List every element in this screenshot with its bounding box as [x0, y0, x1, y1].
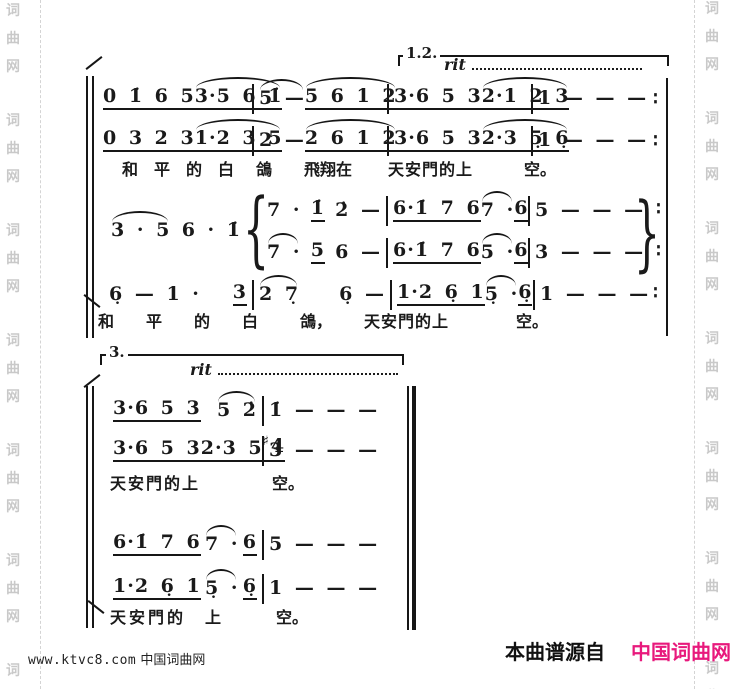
note-group: 6·1̇ 7 6 — [113, 531, 201, 556]
note-group: 5 — — [259, 87, 305, 110]
measure: 2 —2 6 1 2 — [254, 127, 387, 152]
volta-label: 3. — [106, 345, 128, 360]
watermark-char: 曲 — [6, 252, 20, 266]
measure: 0 3 2 31·2 3 5 — [98, 127, 252, 152]
watermark-char: 网 — [6, 170, 20, 184]
lyric-cell: 空。 — [272, 474, 304, 494]
note-group: 3 — — — — [269, 439, 378, 462]
note-group: 6̣ — — [339, 283, 385, 306]
music-line-voice2: 0 3 2 31·2 3 52 —2 6 1 23·6 5 32·3 5̣ 6̣… — [98, 126, 654, 152]
measure: 5 — — — — [530, 199, 644, 222]
lyric-cell: 天安門的上 — [364, 312, 449, 332]
note-group: 5 — — — — [269, 533, 378, 556]
watermark-char: 曲 — [6, 472, 20, 486]
measure: 1 — — — — [264, 577, 392, 600]
watermark-char: 网 — [6, 280, 20, 294]
note-group: 6 — [243, 531, 257, 556]
lyric-cell: 天安門的上 — [388, 160, 473, 180]
footer-url: www.ktvc8.com — [28, 653, 136, 668]
note-group: 5̣ · — [205, 577, 238, 600]
note-group: 3 — — — — [535, 241, 644, 264]
watermark-char: 词 — [705, 332, 719, 346]
watermark-char: 曲 — [705, 140, 719, 154]
watermark-char: 词 — [6, 334, 20, 348]
rit-marking: rit — [444, 57, 466, 73]
watermark-char: 词 — [6, 224, 20, 238]
note-group: 6 · 1̇ — [182, 219, 241, 242]
repeat-dots: ∶ — [653, 284, 658, 303]
music-line-tenor-lead: 3 · 56 · 1̇ — [106, 216, 246, 242]
watermark-char: 网 — [6, 60, 20, 74]
note-group: 2̇ — — [335, 199, 381, 222]
note-group: 5 — — — — [535, 199, 644, 222]
measure: 3·6 5 35 2̇ — [108, 397, 262, 422]
watermark-char: 词 — [6, 444, 20, 458]
repeat-dots: ∶ — [653, 132, 658, 151]
note-group: 6̣ — [243, 575, 257, 600]
note-group: 1·2 6̣ 1 — [397, 281, 485, 306]
footer-sitename-right: 中国词曲网 — [631, 636, 731, 665]
note-group: 1̇ — [311, 197, 325, 222]
note-group: 5 2̇ — [217, 399, 257, 422]
measure: 3·6 5 32·3 5♯4 — [108, 435, 262, 462]
music-line-voice1: 3·6 5 35 2̇1̇ — — — — [108, 396, 392, 422]
repeat-dots: ∶ — [656, 242, 661, 261]
watermark-char: 网 — [705, 608, 719, 622]
watermark-char: 曲 — [705, 250, 719, 264]
footer-source-left: www.ktvc8.com 中国词曲网 — [28, 649, 205, 668]
note-group: 3 — [233, 281, 247, 306]
measure: 1 — — — — [535, 283, 647, 306]
watermark-divider-left — [40, 0, 41, 689]
note-group: 3 · 5 — [111, 219, 170, 242]
watermark-char: 词 — [705, 112, 719, 126]
watermark-char: 词 — [6, 664, 20, 678]
measure: 1·2 6̣ 15̣ ·6̣ — [392, 281, 533, 306]
watermark-char: 网 — [6, 610, 20, 624]
repeat-dots: ∶ — [656, 200, 661, 219]
note-group: 3·6 5 3 — [113, 397, 201, 422]
measure: 6̣ — 1 ·3 — [104, 281, 252, 306]
watermark-char: 词 — [705, 552, 719, 566]
watermark-char: 曲 — [705, 360, 719, 374]
system-diagonal-stroke — [88, 600, 105, 614]
measure: 5 — — — — [264, 533, 392, 556]
watermark-char: 词 — [6, 114, 20, 128]
watermark-char: 网 — [6, 390, 20, 404]
system-brace-open: { — [243, 190, 269, 270]
music-line-tenor-lower: 7 ·56 —6·1̇ 7 65 ·63 — — — — [262, 238, 644, 264]
note-group: 6 — [514, 197, 528, 222]
music-line-voice4: 1·2 6̣ 15̣ ·6̣1 — — — — [108, 574, 392, 600]
measure: 3·6 5 32·3 5̣ 6̣ — [389, 127, 531, 152]
note-group: 1 — — — — [540, 283, 649, 306]
lyric-cell: 天安門的上 — [110, 474, 200, 494]
rit-dotted-line — [472, 68, 642, 70]
watermark-char: 网 — [705, 498, 719, 512]
note-group: 7 · — [267, 199, 300, 222]
sheet-music-page: 词曲网词曲网词曲网词曲网词曲网词曲网词曲网 词曲网词曲网词曲网词曲网词曲网词曲网… — [0, 0, 737, 689]
watermark-char: 曲 — [6, 582, 20, 596]
system-barline — [666, 78, 668, 336]
note-group: 2·3 5 — [201, 437, 263, 462]
system-barline — [92, 386, 94, 628]
measure: 1 — — — — [533, 129, 654, 152]
note-group: 5̣ · — [485, 283, 518, 306]
footer-sitename-left: 中国词曲网 — [140, 653, 205, 668]
rit-marking: rit — [190, 362, 212, 378]
note-group: 1 — — — — [538, 87, 647, 110]
measure: 6·1̇ 7 67 ·6 — [108, 531, 262, 556]
measure: 1̇ — — — — [264, 399, 392, 422]
note-group: 3·6 5 3 — [113, 437, 201, 462]
watermark-char: 网 — [705, 168, 719, 182]
note-group: 3·6 5 3 — [394, 127, 482, 152]
watermark-char: 曲 — [6, 362, 20, 376]
note-group: 1 — — — — [269, 577, 378, 600]
repeat-dots: ∶ — [653, 90, 658, 109]
lyric-cell: 鴿， — [300, 312, 332, 332]
volta-label: 1.2. — [403, 46, 440, 61]
watermark-char: 词 — [6, 554, 20, 568]
measure: 1·2 6̣ 15̣ ·6̣ — [108, 575, 262, 600]
system-barline — [407, 386, 409, 630]
note-group: 2 6 1 2 — [305, 127, 397, 152]
measure: 3 · 56 · 1̇ — [106, 219, 246, 242]
watermark-char: 词 — [705, 2, 719, 16]
lyric-cell: 天安門的 上 — [110, 608, 224, 628]
watermark-char: 曲 — [705, 580, 719, 594]
measure: 3·6 5 32·1 2 3 — [389, 85, 531, 110]
lyric-cell: 空。 — [516, 312, 548, 332]
note-group: 2 — — [259, 129, 305, 152]
music-line-voice2: 3·6 5 32·3 5♯43 — — — — [108, 436, 392, 462]
watermark-char: 词 — [6, 4, 20, 18]
lyric-cell: 空。 — [276, 608, 308, 628]
measure: 2 7̣6̣ — — [254, 283, 390, 306]
music-line-voice3: 6·1̇ 7 67 ·65 — — — — [108, 530, 392, 556]
measure: 3 — — — — [530, 241, 644, 264]
note-group: 6 — — [335, 241, 381, 264]
music-line-tenor-upper: 7 ·1̇2̇ —6·1̇ 7 67 ·65 — — — — [262, 196, 644, 222]
note-group: 1 — — — — [538, 129, 647, 152]
note-group: 6·1̇ 7 6 — [393, 239, 481, 264]
watermark-char: 曲 — [705, 470, 719, 484]
note-group: 7 · — [481, 199, 514, 222]
system-diagonal-stroke — [86, 56, 103, 70]
music-line-bass: 6̣ — 1 ·32 7̣6̣ —1·2 6̣ 15̣ ·6̣1 — — — — [104, 280, 647, 306]
volta-bracket — [100, 354, 404, 365]
note-group: 5 — [311, 239, 325, 264]
system-barline — [92, 76, 94, 338]
watermark-divider-right — [694, 0, 695, 689]
footer-credit-prefix: 本曲谱源自 — [505, 636, 605, 665]
watermark-char: 词 — [705, 442, 719, 456]
watermark-char: 网 — [705, 388, 719, 402]
measure: 7 ·56 — — [262, 239, 386, 264]
lyric-cell: 鴿 飛翔在 — [256, 160, 352, 180]
watermark-char: 词 — [705, 222, 719, 236]
lyric-cell: 和平的白 — [122, 160, 250, 180]
watermark-char: 网 — [705, 58, 719, 72]
note-group: 0 1̇ 6 5 — [103, 85, 195, 110]
note-group: 6·1̇ 7 6 — [393, 197, 481, 222]
watermark-char: 曲 — [705, 30, 719, 44]
note-group: 3·6 5 3 — [394, 85, 482, 110]
watermark-char: 网 — [705, 278, 719, 292]
measure: 7 ·1̇2̇ — — [262, 197, 386, 222]
rit-dotted-line — [218, 373, 398, 375]
lyric-cell: 空。 — [524, 160, 556, 180]
measure: 0 1̇ 6 53·5 6 1̇ — [98, 85, 252, 110]
lyric-cell: 和平的白 — [98, 312, 290, 332]
measure: 3 — — — — [264, 439, 392, 462]
note-group: 6 — [514, 239, 528, 264]
system-barline — [86, 386, 88, 628]
note-group: 1̇ — — — — [269, 399, 378, 422]
note-group: 7 · — [205, 533, 238, 556]
music-line-voice1: 0 1̇ 6 53·5 6 1̇5 —5 6 1 23·6 5 32·1 2 3… — [98, 84, 654, 110]
watermark-char: 网 — [6, 500, 20, 514]
watermark-char: 曲 — [6, 32, 20, 46]
note-group: 5 6 1 2 — [305, 85, 397, 110]
measure: 6·1̇ 7 67 ·6 — [388, 197, 528, 222]
note-group: 1·2 6̣ 1 — [113, 575, 201, 600]
final-barline-thick — [412, 386, 416, 630]
measure: 6·1̇ 7 65 ·6 — [388, 239, 528, 264]
measure: 5 —5 6 1 2 — [254, 85, 387, 110]
note-group: 6̣ — [518, 281, 532, 306]
note-group: 2 7̣ — [259, 283, 299, 306]
watermark-char: 曲 — [6, 142, 20, 156]
note-group: 7 · — [267, 241, 300, 264]
note-group: 0 3 2 3 — [103, 127, 195, 152]
note-group: 5 · — [481, 241, 514, 264]
note-group: 6̣ — 1 · — [109, 283, 200, 306]
measure: 1 — — — — [533, 87, 654, 110]
footer-source-right: 本曲谱源自 中国词曲网 — [505, 636, 731, 665]
